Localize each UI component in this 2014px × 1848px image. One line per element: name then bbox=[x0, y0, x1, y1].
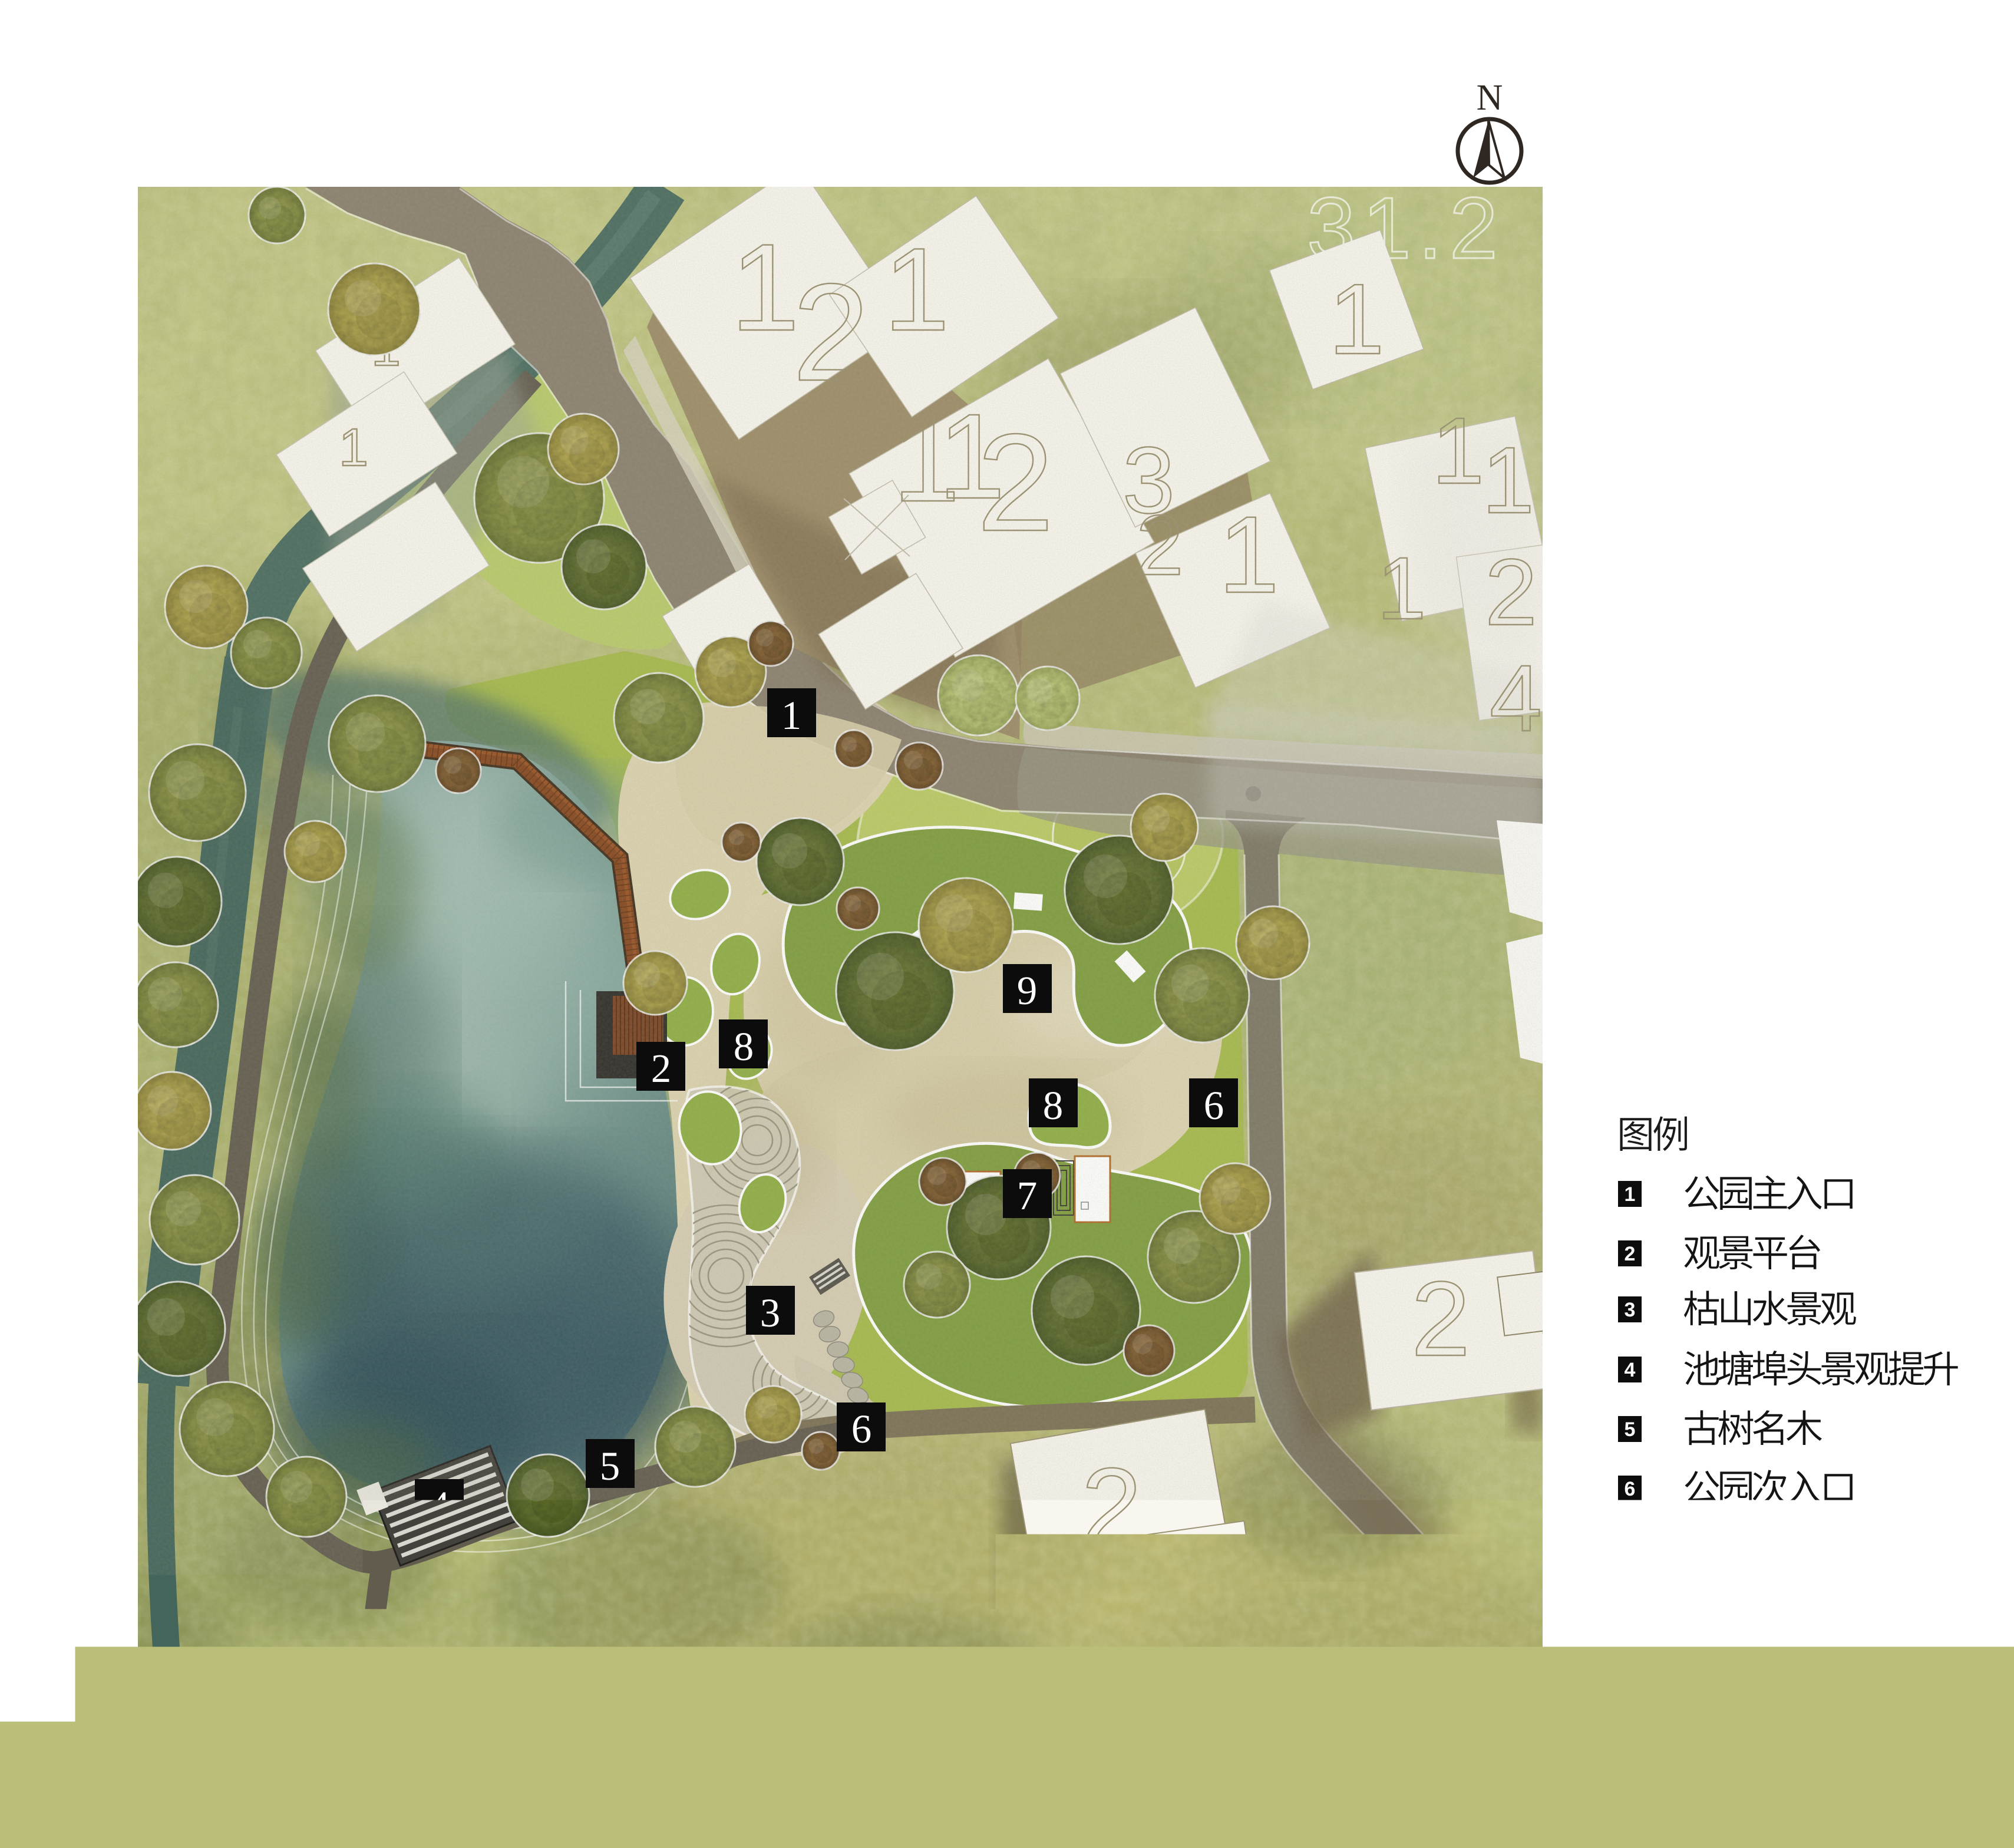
svg-text:9: 9 bbox=[1625, 1650, 1636, 1672]
svg-text:6: 6 bbox=[1204, 1083, 1224, 1128]
svg-text:4: 4 bbox=[1625, 1359, 1636, 1381]
svg-text:9: 9 bbox=[1017, 968, 1038, 1013]
svg-text:1: 1 bbox=[1625, 1183, 1636, 1206]
svg-text:N: N bbox=[1477, 78, 1503, 118]
svg-text:8: 8 bbox=[734, 1024, 754, 1069]
svg-text:5: 5 bbox=[600, 1444, 620, 1489]
svg-text:8: 8 bbox=[1043, 1083, 1064, 1128]
svg-text:1: 1 bbox=[781, 693, 802, 738]
svg-text:6: 6 bbox=[1625, 1478, 1636, 1500]
svg-text:5: 5 bbox=[1625, 1418, 1636, 1441]
svg-text:3: 3 bbox=[1625, 1299, 1636, 1321]
svg-text:2: 2 bbox=[1625, 1243, 1636, 1265]
svg-text:31.2: 31.2 bbox=[1307, 180, 1505, 277]
svg-text:4: 4 bbox=[430, 1483, 450, 1528]
svg-text:2: 2 bbox=[651, 1046, 672, 1091]
svg-text:7: 7 bbox=[1625, 1534, 1636, 1556]
svg-text:3: 3 bbox=[760, 1291, 781, 1335]
svg-text:6: 6 bbox=[851, 1407, 872, 1451]
svg-text:7: 7 bbox=[1017, 1173, 1038, 1218]
svg-text:8: 8 bbox=[1625, 1590, 1636, 1612]
